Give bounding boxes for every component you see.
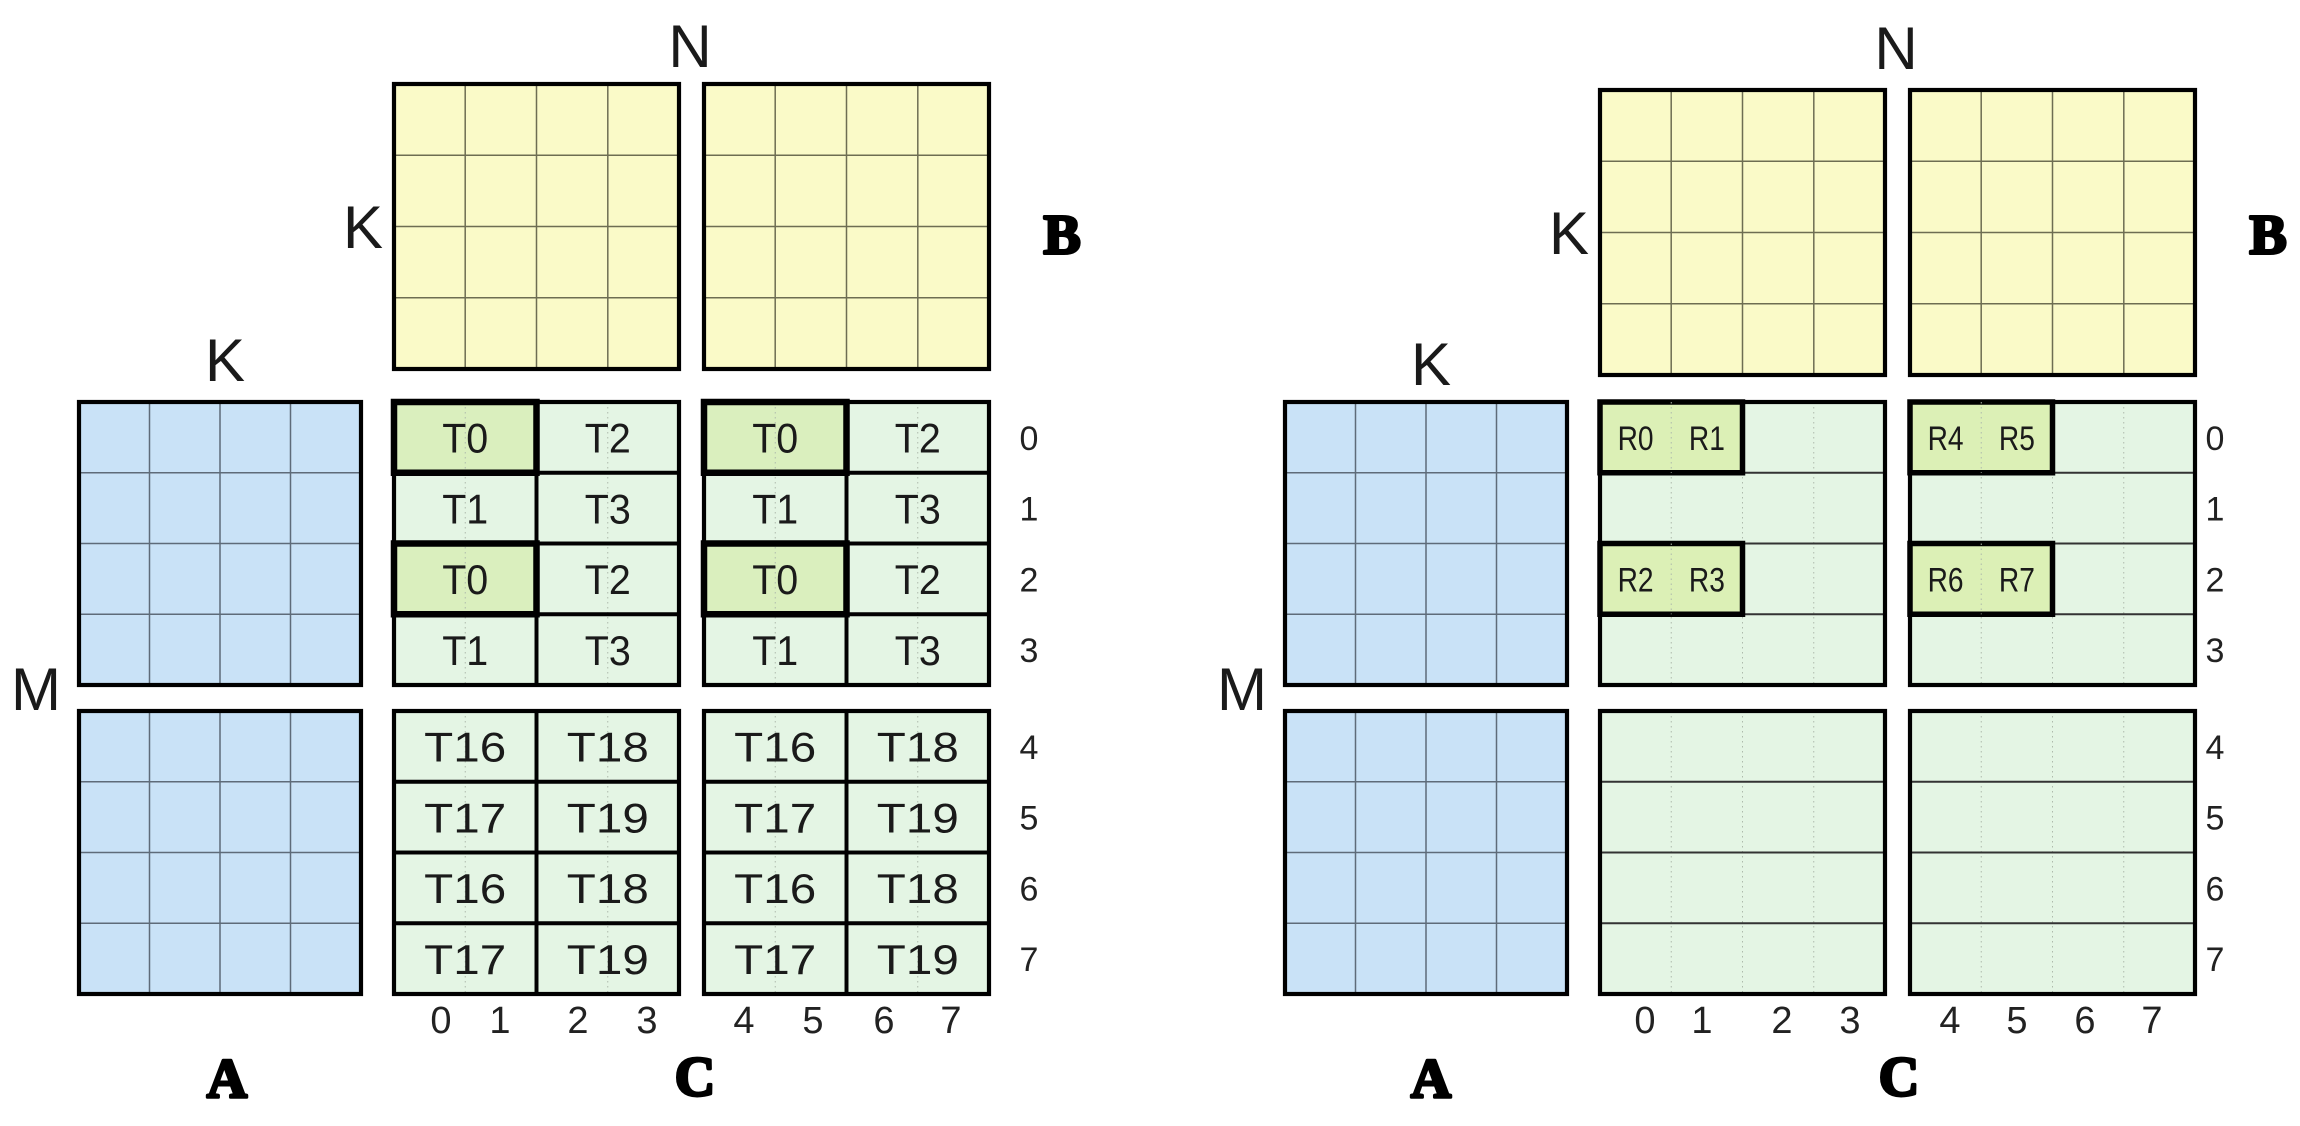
svg-text:N: N bbox=[1874, 15, 1917, 82]
svg-text:T16: T16 bbox=[734, 724, 816, 771]
svg-text:T2: T2 bbox=[895, 556, 941, 603]
svg-text:3: 3 bbox=[1839, 1000, 1860, 1042]
svg-text:1: 1 bbox=[489, 1000, 510, 1042]
svg-text:T19: T19 bbox=[567, 794, 649, 841]
svg-text:T1: T1 bbox=[752, 627, 798, 674]
svg-text:T16: T16 bbox=[424, 724, 506, 771]
svg-text:T1: T1 bbox=[442, 485, 488, 532]
svg-text:A: A bbox=[1411, 1049, 1452, 1111]
svg-text:1: 1 bbox=[2206, 491, 2225, 529]
svg-text:R6: R6 bbox=[1928, 561, 1964, 599]
svg-text:B: B bbox=[2249, 205, 2286, 267]
svg-text:6: 6 bbox=[873, 1000, 894, 1042]
svg-text:2: 2 bbox=[567, 1000, 588, 1042]
svg-text:T2: T2 bbox=[585, 415, 631, 462]
svg-text:7: 7 bbox=[2141, 1000, 2162, 1042]
svg-text:T1: T1 bbox=[752, 485, 798, 532]
svg-text:R3: R3 bbox=[1689, 561, 1725, 599]
svg-text:B: B bbox=[1043, 205, 1080, 267]
svg-text:T18: T18 bbox=[877, 865, 959, 912]
svg-text:K: K bbox=[1549, 200, 1589, 267]
svg-text:6: 6 bbox=[2074, 1000, 2095, 1042]
svg-text:7: 7 bbox=[940, 1000, 961, 1042]
svg-text:M: M bbox=[1217, 656, 1267, 723]
svg-text:0: 0 bbox=[1634, 1000, 1655, 1042]
svg-text:M: M bbox=[11, 656, 61, 723]
svg-text:C: C bbox=[1879, 1047, 1919, 1109]
svg-text:T18: T18 bbox=[567, 724, 649, 771]
svg-text:3: 3 bbox=[636, 1000, 657, 1042]
svg-text:T17: T17 bbox=[424, 794, 506, 841]
svg-text:4: 4 bbox=[1020, 729, 1039, 767]
svg-text:6: 6 bbox=[2206, 870, 2225, 908]
svg-text:1: 1 bbox=[1691, 1000, 1712, 1042]
svg-text:A: A bbox=[207, 1049, 248, 1111]
svg-text:R7: R7 bbox=[1999, 561, 2035, 599]
svg-text:T18: T18 bbox=[877, 724, 959, 771]
svg-text:4: 4 bbox=[733, 1000, 754, 1042]
svg-text:5: 5 bbox=[2206, 800, 2225, 838]
svg-text:0: 0 bbox=[430, 1000, 451, 1042]
svg-text:T17: T17 bbox=[424, 936, 506, 983]
svg-text:T19: T19 bbox=[877, 936, 959, 983]
svg-text:T16: T16 bbox=[424, 865, 506, 912]
svg-text:R5: R5 bbox=[1999, 420, 2035, 458]
svg-text:T19: T19 bbox=[877, 794, 959, 841]
svg-text:T0: T0 bbox=[442, 556, 488, 603]
svg-text:6: 6 bbox=[1020, 870, 1039, 908]
svg-text:C: C bbox=[675, 1047, 715, 1109]
svg-text:T0: T0 bbox=[752, 415, 798, 462]
svg-text:0: 0 bbox=[1020, 420, 1039, 458]
svg-text:3: 3 bbox=[2206, 632, 2225, 670]
svg-text:R1: R1 bbox=[1689, 420, 1725, 458]
svg-text:7: 7 bbox=[1020, 941, 1039, 979]
svg-text:2: 2 bbox=[1771, 1000, 1792, 1042]
svg-text:T1: T1 bbox=[442, 627, 488, 674]
svg-text:T16: T16 bbox=[734, 865, 816, 912]
svg-text:K: K bbox=[205, 327, 245, 394]
svg-text:T3: T3 bbox=[585, 485, 631, 532]
svg-text:1: 1 bbox=[1020, 491, 1039, 529]
svg-text:T3: T3 bbox=[895, 627, 941, 674]
svg-text:T3: T3 bbox=[895, 485, 941, 532]
svg-text:T17: T17 bbox=[734, 794, 816, 841]
svg-text:T18: T18 bbox=[567, 865, 649, 912]
svg-text:4: 4 bbox=[2206, 729, 2225, 767]
svg-text:2: 2 bbox=[1020, 561, 1039, 599]
svg-text:R4: R4 bbox=[1928, 420, 1964, 458]
svg-text:5: 5 bbox=[1020, 800, 1039, 838]
svg-text:R0: R0 bbox=[1618, 420, 1654, 458]
svg-text:T0: T0 bbox=[442, 415, 488, 462]
svg-text:T17: T17 bbox=[734, 936, 816, 983]
svg-text:T2: T2 bbox=[585, 556, 631, 603]
svg-text:4: 4 bbox=[1939, 1000, 1960, 1042]
svg-text:K: K bbox=[343, 194, 383, 261]
svg-text:5: 5 bbox=[2006, 1000, 2027, 1042]
svg-text:7: 7 bbox=[2206, 941, 2225, 979]
svg-text:T3: T3 bbox=[585, 627, 631, 674]
svg-text:T0: T0 bbox=[752, 556, 798, 603]
svg-text:0: 0 bbox=[2206, 420, 2225, 458]
svg-text:K: K bbox=[1411, 331, 1451, 398]
svg-text:3: 3 bbox=[1020, 632, 1039, 670]
svg-text:R2: R2 bbox=[1618, 561, 1654, 599]
svg-text:2: 2 bbox=[2206, 561, 2225, 599]
svg-text:N: N bbox=[668, 13, 711, 80]
svg-text:T2: T2 bbox=[895, 415, 941, 462]
svg-text:5: 5 bbox=[802, 1000, 823, 1042]
svg-text:T19: T19 bbox=[567, 936, 649, 983]
